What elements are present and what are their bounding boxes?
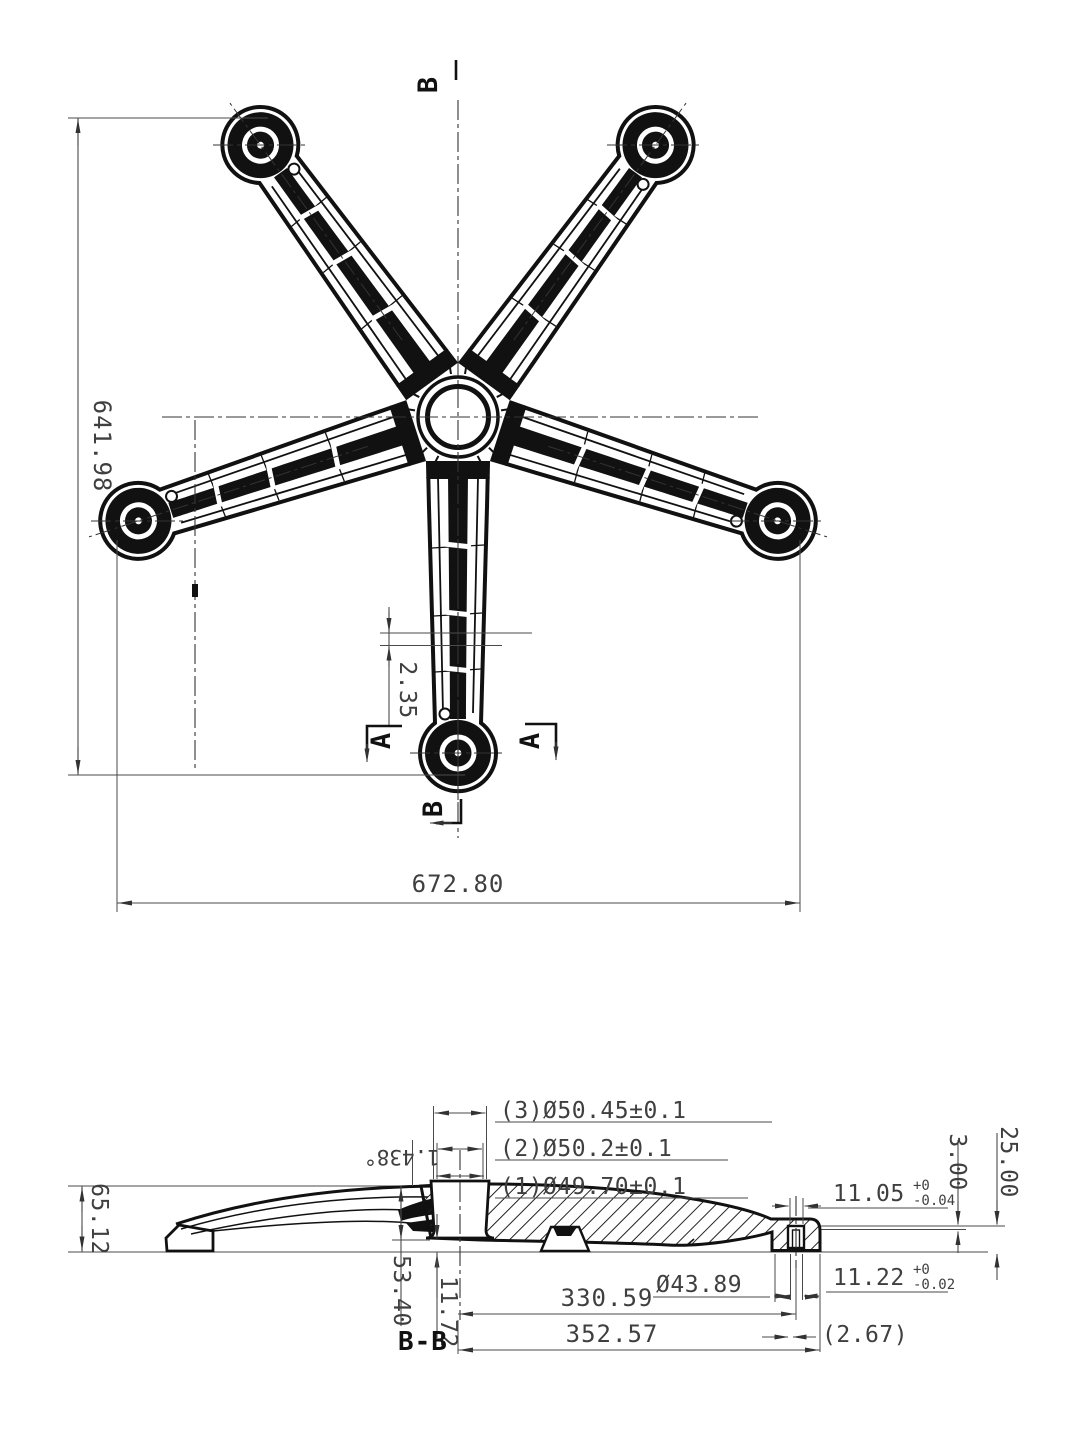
dim-lip-label: 3.00 (944, 1133, 970, 1190)
dim-right-heights: 25.00 3.00 (944, 1126, 1021, 1280)
dim-width-label: 672.80 (412, 870, 505, 898)
dim-total-height-label: 65.12 (86, 1183, 112, 1255)
section-a-letter-left: A (366, 733, 397, 749)
dim-boss-dia-label: Ø43.89 (656, 1272, 742, 1298)
callout-1-label: (1)Ø49.70±0.1 (500, 1174, 687, 1200)
dim-hub-to-boss: 330.59 (458, 1268, 796, 1320)
leg-right (490, 395, 843, 574)
cad-drawing-chair-base: 641.98 672.80 2.35 A A (0, 0, 1086, 1432)
leg-upper-left (197, 78, 462, 403)
dim-total-height: 65.12 (82, 1183, 112, 1255)
slot-bottom-tol-plus: +0 (913, 1262, 930, 1278)
section-a-letter-right: A (515, 733, 546, 749)
callout-2-label: (2)Ø50.2±0.1 (500, 1136, 672, 1162)
dim-slot-top-label: 11.05 (833, 1181, 905, 1207)
dim-slot-bottom-label: 11.22 (833, 1265, 905, 1291)
dim-offset-label: (2.67) (822, 1322, 908, 1348)
taper-angle-label: 1.438° (364, 1145, 440, 1169)
slot-top-tol-minus: -0.04 (913, 1193, 955, 1209)
section-b-letter-top: B (413, 77, 444, 93)
slot-bottom-tol-minus: -0.02 (913, 1277, 955, 1293)
dim-rib-label: 2.35 (394, 661, 420, 718)
drawing-svg: 641.98 672.80 2.35 A A (0, 0, 1086, 1432)
slot-top-tol-plus: +0 (913, 1178, 930, 1194)
leg-left (73, 395, 426, 574)
leg-upper-right (454, 78, 719, 403)
section-view-b-b: (3)Ø50.45±0.1 (2)Ø50.2±0.1 (1)Ø49.70±0.1… (68, 1098, 1021, 1357)
dim-offset: (2.67) (762, 1322, 908, 1348)
section-b-letter-bottom: B (418, 801, 449, 817)
left-leg-outline (166, 1186, 452, 1251)
dim-height-label: 641.98 (88, 400, 116, 493)
dim-slot-bottom: 11.22 +0 -0.02 (774, 1254, 955, 1300)
dim-top-label: 25.00 (995, 1126, 1021, 1198)
dim-hub-to-boss-label: 330.59 (561, 1284, 654, 1312)
dim-slot-top: 11.05 +0 -0.04 (772, 1178, 955, 1224)
dim-socket-depth-label: 53.40 (388, 1255, 414, 1327)
top-view-star-base: 641.98 672.80 2.35 A A (68, 60, 843, 912)
callout-3-label: (3)Ø50.45±0.1 (500, 1098, 687, 1124)
section-title: B-B (398, 1327, 448, 1357)
centerlines (91, 100, 825, 838)
dim-half-span-label: 352.57 (566, 1320, 659, 1348)
